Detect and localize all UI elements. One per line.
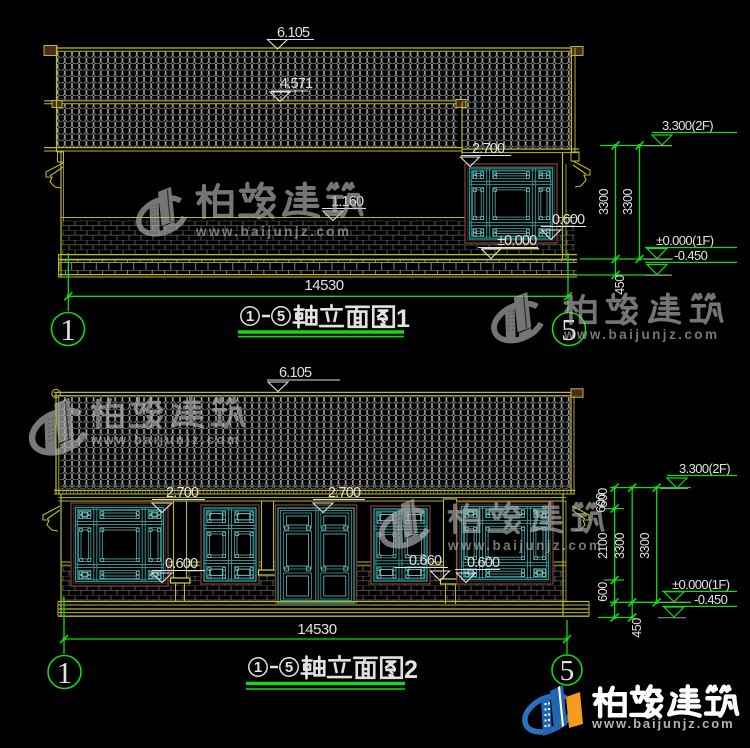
svg-text:14530: 14530 bbox=[304, 277, 343, 294]
svg-text:600: 600 bbox=[594, 493, 608, 513]
svg-text:±0.000(1F): ±0.000(1F) bbox=[672, 577, 730, 592]
svg-text:5: 5 bbox=[277, 308, 285, 325]
svg-text:600: 600 bbox=[596, 582, 610, 602]
svg-text:5: 5 bbox=[560, 655, 575, 687]
svg-text:0.600: 0.600 bbox=[552, 212, 585, 228]
svg-text:-0.450: -0.450 bbox=[694, 592, 728, 607]
svg-text:www.baijunjz.com: www.baijunjz.com bbox=[447, 538, 603, 553]
svg-text:14530: 14530 bbox=[297, 621, 336, 638]
svg-text:450: 450 bbox=[613, 275, 627, 295]
svg-text:3300: 3300 bbox=[621, 189, 635, 215]
svg-text:www.baijunjz.com: www.baijunjz.com bbox=[90, 432, 241, 447]
svg-text:3300: 3300 bbox=[638, 533, 652, 559]
svg-text:6.105: 6.105 bbox=[279, 365, 312, 381]
svg-text:3.300(2F): 3.300(2F) bbox=[679, 461, 730, 476]
svg-text:-0.450: -0.450 bbox=[674, 248, 708, 263]
svg-text:1: 1 bbox=[254, 659, 262, 676]
svg-text:3300: 3300 bbox=[613, 533, 627, 559]
svg-text:±0.000: ±0.000 bbox=[497, 233, 537, 249]
svg-text:4.571: 4.571 bbox=[280, 76, 313, 92]
svg-text:2: 2 bbox=[404, 656, 418, 684]
svg-text:6.105: 6.105 bbox=[277, 25, 310, 41]
svg-text:3.300(2F): 3.300(2F) bbox=[662, 118, 713, 133]
svg-text:5: 5 bbox=[285, 659, 293, 676]
svg-text:0.660: 0.660 bbox=[409, 553, 442, 569]
svg-text:2.700: 2.700 bbox=[328, 485, 361, 501]
svg-text:0.600: 0.600 bbox=[165, 556, 198, 572]
svg-text:www.baijunjz.com: www.baijunjz.com bbox=[195, 224, 351, 239]
svg-text:1: 1 bbox=[60, 312, 76, 347]
svg-text:www.baijunjz.com: www.baijunjz.com bbox=[563, 327, 719, 342]
svg-text:2.700: 2.700 bbox=[166, 485, 199, 501]
svg-text:±0.000(1F): ±0.000(1F) bbox=[656, 233, 714, 248]
svg-text:1: 1 bbox=[396, 305, 410, 333]
svg-text:www.baijunjz.com: www.baijunjz.com bbox=[591, 716, 735, 731]
svg-text:1: 1 bbox=[57, 655, 73, 690]
svg-text:1: 1 bbox=[246, 308, 254, 325]
svg-text:2.700: 2.700 bbox=[472, 141, 505, 157]
svg-text:0.600: 0.600 bbox=[467, 555, 500, 571]
svg-text:450: 450 bbox=[630, 618, 644, 638]
svg-text:3300: 3300 bbox=[597, 189, 611, 215]
